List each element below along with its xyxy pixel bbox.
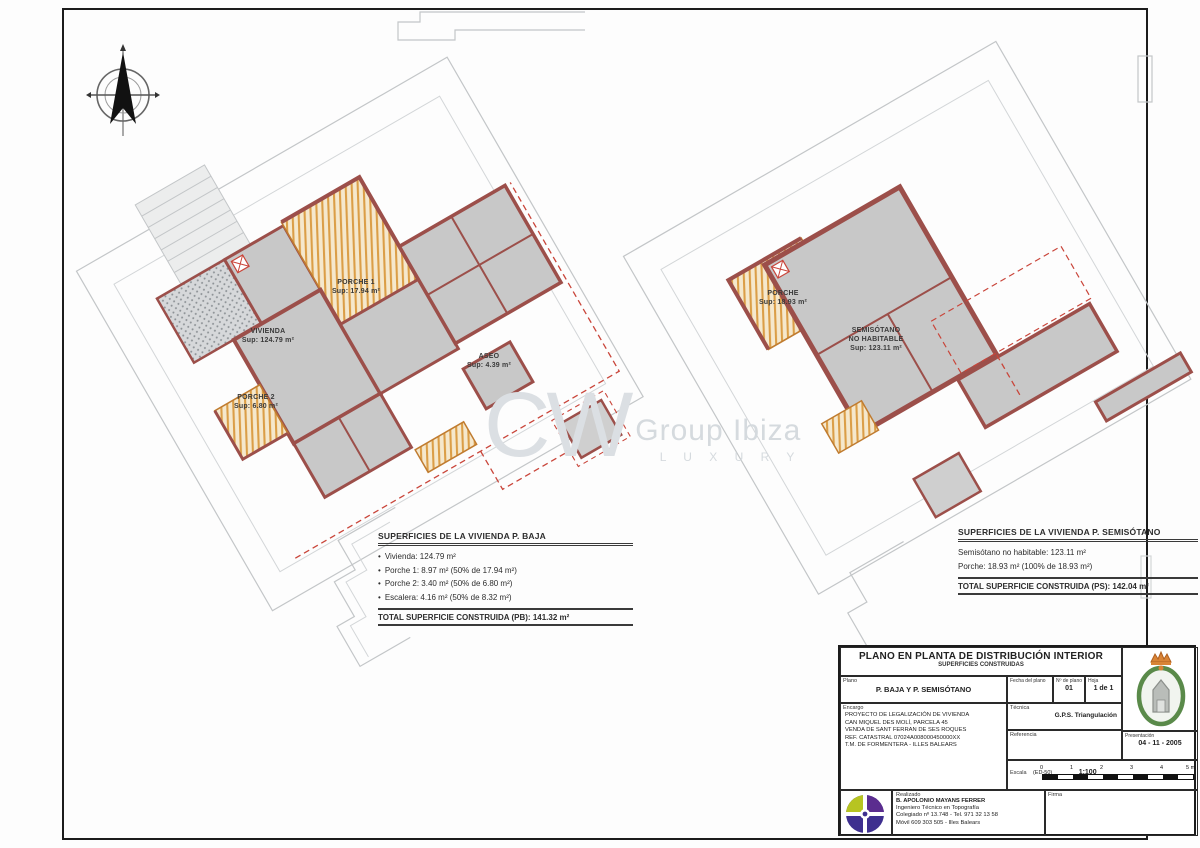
num-value: 01: [1054, 685, 1084, 692]
hoja-value: 1 de 1: [1086, 685, 1121, 692]
encargo-line-1: PROYECTO DE LEGALIZACIÓN DE VIVIENDA: [841, 712, 1006, 720]
label-semisotano: SEMISÓTANO: [852, 325, 901, 334]
summary-left-block: SUPERFICIES DE LA VIVIENDA P. BAJA •Vivi…: [378, 531, 633, 626]
plano-label: Plano: [841, 677, 1006, 685]
encargo-line-3: VENDA DE SANT FERRAN DE SES ROQUES: [841, 727, 1006, 735]
crest-cell: [1122, 647, 1198, 731]
summary-left-item-1: Vivienda: 124.79 m²: [385, 552, 456, 561]
hoja-label: Hoja: [1086, 677, 1121, 685]
plano-value: P. BAJA Y P. SEMISÓTANO: [841, 685, 1006, 694]
college-crest-icon: [1123, 648, 1198, 731]
tecnica-label: Técnica: [1008, 704, 1121, 712]
summary-left-item-2: Porche 1: 8.97 m² (50% de 17.94 m²): [385, 566, 517, 575]
north-compass-icon: [86, 44, 160, 136]
encargo-cell: Encargo PROYECTO DE LEGALIZACIÓN DE VIVI…: [840, 703, 1007, 790]
fecha-value: 04 - 11 - 2005: [1123, 740, 1197, 747]
encargo-line-2: CAN MIQUEL DES MOLÍ, PARCELA 45: [841, 720, 1006, 728]
realizado-line-1: B. APOLONIO MAYANS FERRER: [896, 798, 1041, 805]
plano-cell: Plano P. BAJA Y P. SEMISÓTANO: [840, 676, 1007, 703]
escala-cell: Escala (ED-50) 1:100 0 1 2 3 4 5 m: [1007, 760, 1198, 790]
num-cell: Nº de plano 01: [1053, 676, 1085, 703]
realizado-cell: Realizado B. APOLONIO MAYANS FERRER Inge…: [892, 790, 1045, 836]
firma-cell: Firma: [1045, 790, 1198, 836]
referencia-label: Referencia: [1008, 731, 1121, 739]
summary-right-item-2: Porche: 18.93 m² (100% de 18.93 m²): [958, 562, 1092, 571]
label-porche1: PORCHE 1: [337, 279, 374, 286]
scale-tick-3: 3: [1130, 765, 1133, 771]
referencia-cell: Referencia: [1007, 730, 1122, 760]
drawing-title: PLANO EN PLANTA DE DISTRIBUCIÓN INTERIOR: [841, 651, 1121, 662]
scale-tick-4: 4: [1160, 765, 1163, 771]
escala-label: Escala: [1008, 769, 1029, 777]
summary-left-total: TOTAL SUPERFICIE CONSTRUIDA (PB): 141.32…: [378, 608, 633, 626]
label-aseo: ASEO: [479, 353, 500, 360]
summary-right-item-1: Semisótano no habitable: 123.11 m²: [958, 548, 1086, 557]
scale-tick-1: 1: [1070, 765, 1073, 771]
label-vivienda-area: Sup: 124.79 m²: [242, 337, 295, 344]
label-porche-area: Sup: 18.93 m²: [759, 299, 808, 306]
tecnica-cell: Técnica G.P.S. Triangulación: [1007, 703, 1122, 730]
scale-tick-2: 2: [1100, 765, 1103, 771]
realizado-line-3: Colegiado nº 13.748 - Tel. 971 32 13 58: [896, 812, 1041, 819]
company-logo-icon: [841, 791, 892, 836]
label-porche: PORCHE: [767, 290, 798, 297]
logo-cell: [840, 790, 892, 836]
firma-label: Firma: [1046, 791, 1197, 799]
summary-left-item-4: Escalera: 4.16 m² (50% de 8.32 m²): [385, 593, 512, 602]
scale-tick-5: 5 m: [1186, 765, 1195, 771]
fecha-cell: Presentación 04 - 11 - 2005: [1122, 731, 1198, 760]
label-porche1-area: Sup: 17.94 m²: [332, 288, 381, 295]
scale-bar: [1042, 774, 1194, 780]
drawing-subtitle: SUPERFICIES CONSTRUIDAS: [841, 662, 1121, 668]
summary-left-item-3: Porche 2: 3.40 m² (50% de 6.80 m²): [385, 579, 513, 588]
scale-tick-0: 0: [1040, 765, 1043, 771]
label-semisotano-2: NO HABITABLE: [849, 336, 904, 343]
hoja-cell: Hoja 1 de 1: [1085, 676, 1122, 703]
title-block: PLANO EN PLANTA DE DISTRIBUCIÓN INTERIOR…: [838, 645, 1196, 836]
encargo-line-4: REF. CATASTRAL 07024A008000450000XX: [841, 735, 1006, 743]
plan-right-building: [620, 39, 1200, 695]
summary-right-title: SUPERFICIES DE LA VIVIENDA P. SEMISÓTANO: [958, 527, 1198, 542]
title-cell: PLANO EN PLANTA DE DISTRIBUCIÓN INTERIOR…: [840, 647, 1122, 676]
label-semisotano-area: Sup: 123.11 m²: [850, 345, 902, 352]
tecnica-value: G.P.S. Triangulación: [1008, 712, 1121, 719]
realizado-line-4: Móvil 609 303 505 - Illes Balears: [896, 820, 1041, 827]
fecha-plano-cell: Fecha del plano: [1007, 676, 1053, 703]
label-vivienda: VIVIENDA: [251, 328, 286, 335]
encargo-line-5: T.M. DE FORMENTERA - ILLES BALEARS: [841, 742, 1006, 750]
label-porche2: PORCHE 2: [237, 394, 274, 401]
num-label: Nº de plano: [1054, 677, 1084, 685]
encargo-label: Encargo: [841, 704, 1006, 712]
label-aseo-area: Sup: 4.39 m²: [467, 362, 511, 369]
fecha-label: Presentación: [1123, 732, 1197, 740]
label-porche2-area: Sup: 6.80 m²: [234, 403, 278, 410]
drawing-sheet: PORCHE 1 Sup: 17.94 m² VIVIENDA Sup: 124…: [0, 0, 1200, 848]
summary-right-total: TOTAL SUPERFICIE CONSTRUIDA (PS): 142.04…: [958, 577, 1198, 595]
fecha-plano-label: Fecha del plano: [1008, 677, 1052, 685]
summary-right-block: SUPERFICIES DE LA VIVIENDA P. SEMISÓTANO…: [958, 527, 1198, 595]
summary-left-title: SUPERFICIES DE LA VIVIENDA P. BAJA: [378, 531, 633, 546]
